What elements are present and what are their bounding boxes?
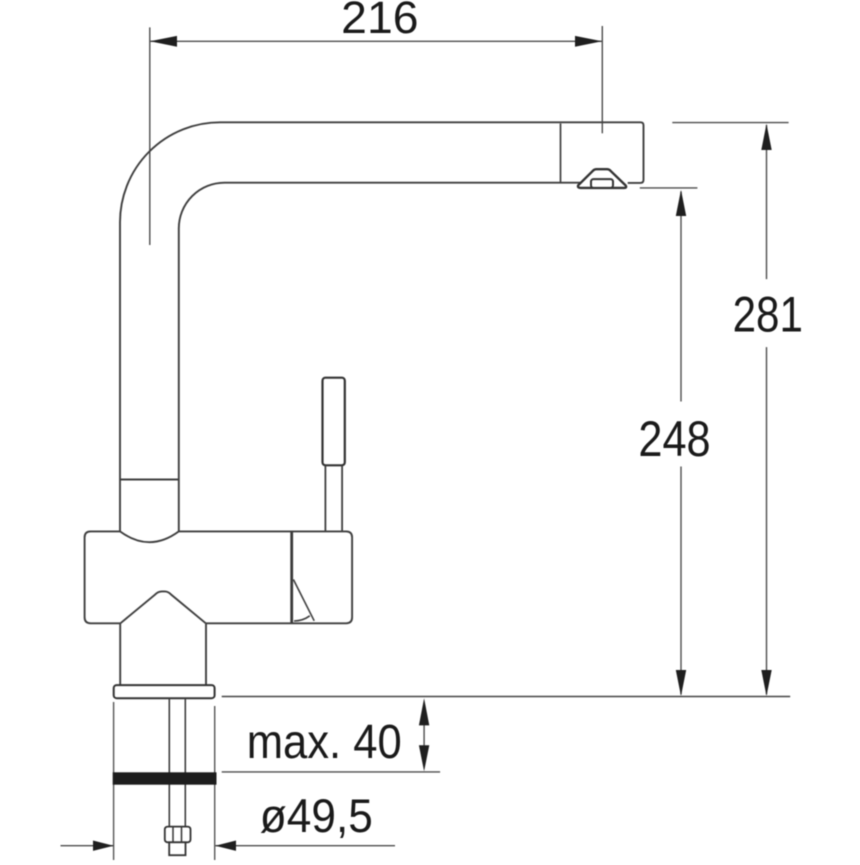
svg-text:216: 216 bbox=[341, 0, 418, 43]
svg-text:max. 40: max. 40 bbox=[247, 715, 402, 769]
svg-text:ø49,5: ø49,5 bbox=[260, 790, 373, 843]
svg-text:281: 281 bbox=[733, 287, 803, 343]
svg-text:248: 248 bbox=[638, 411, 710, 467]
